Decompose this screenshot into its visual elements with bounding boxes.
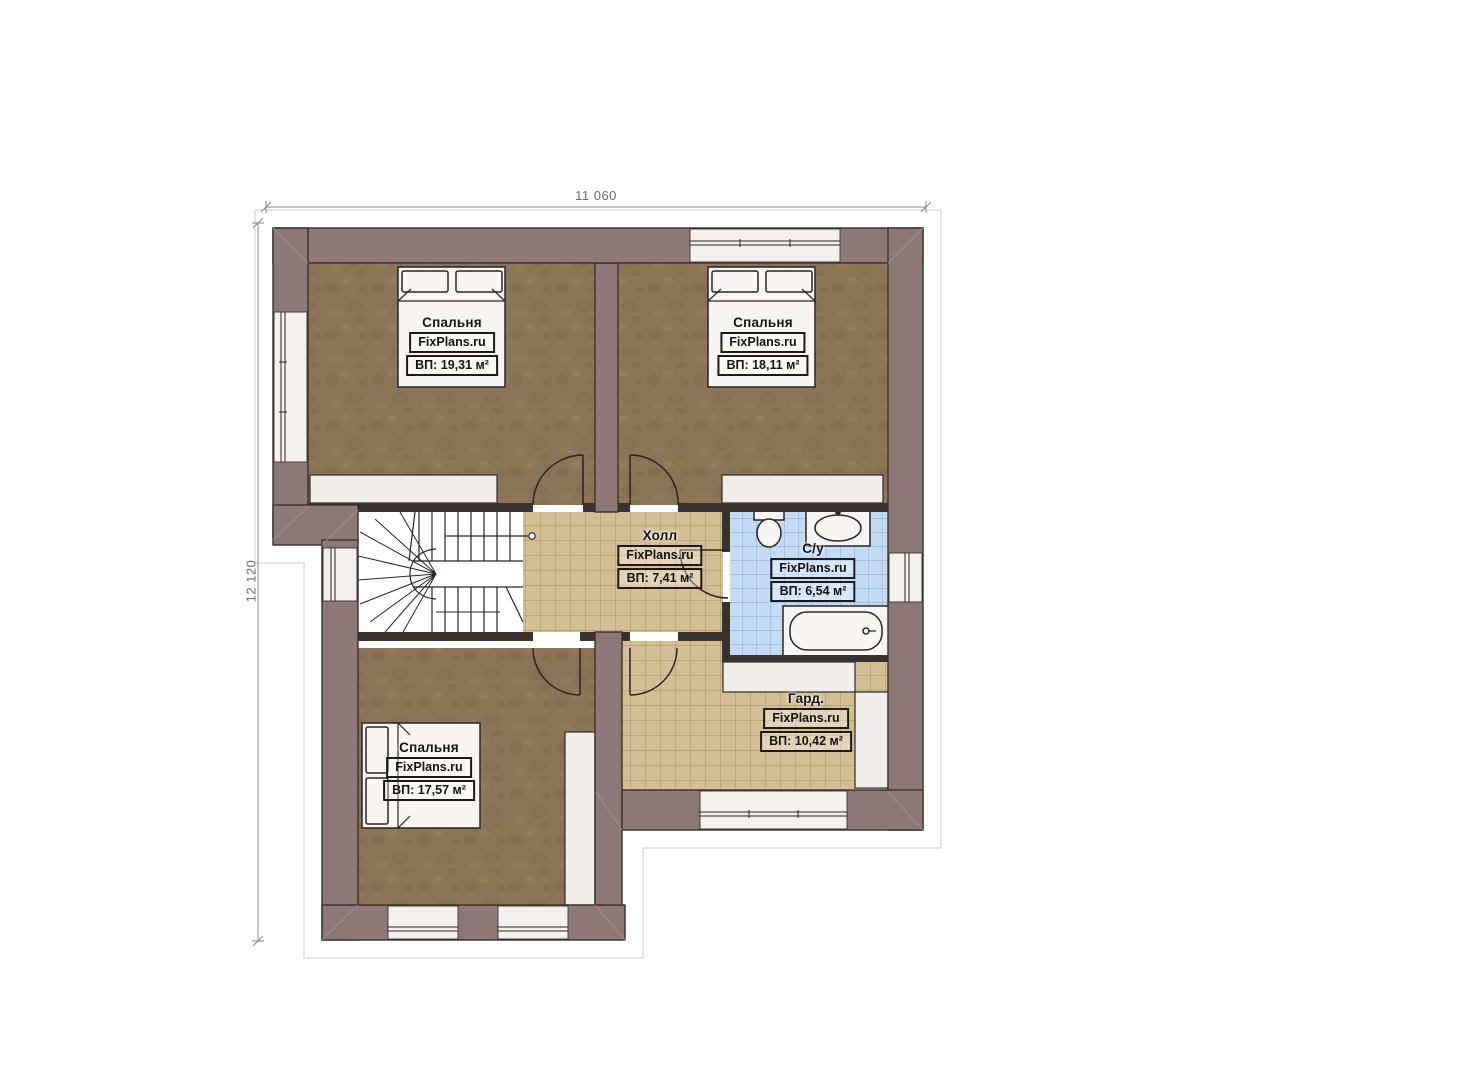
room-area: ВП: 6,54 м² <box>771 581 856 602</box>
wall-hall-bathroom-upper <box>722 512 730 552</box>
room-name: С/у <box>802 541 824 556</box>
room-area: ВП: 7,41 м² <box>618 568 703 589</box>
wall-right <box>888 228 923 830</box>
wall-bedroom-wardrobe <box>595 632 622 910</box>
room-name: Спальня <box>733 315 793 330</box>
window-bottom-wardrobe <box>700 791 847 829</box>
room-name: Спальня <box>399 740 459 755</box>
room-area: ВП: 17,57 м² <box>383 780 475 801</box>
window-top-bedroom-right <box>690 229 840 262</box>
room-area: ВП: 18,11 м² <box>717 355 808 376</box>
window-bottom-bedroom-2 <box>498 906 568 939</box>
room-label-bathroom: С/у FixPlans.ru ВП: 6,54 м² <box>770 541 855 602</box>
watermark-badge: FixPlans.ru <box>720 332 805 353</box>
window-right-bathroom <box>889 553 922 602</box>
floor-plan-drawing <box>0 0 1473 1080</box>
room-area: ВП: 19,31 м² <box>406 355 498 376</box>
room-label-bedroom-bottom-left: Спальня FixPlans.ru ВП: 17,57 м² <box>383 740 475 801</box>
wall-between-top-bedrooms <box>595 263 618 512</box>
floor-staircase <box>358 512 523 632</box>
room-label-wardrobe: Гард. FixPlans.ru ВП: 10,42 м² <box>760 691 852 752</box>
niche-bedroom-top-right <box>722 475 883 503</box>
watermark-badge: FixPlans.ru <box>617 545 702 566</box>
room-label-hall: Холл FixPlans.ru ВП: 7,41 м² <box>617 528 702 589</box>
stair-newel-post <box>529 533 535 539</box>
floor-plan-canvas: 11 060 12 120 Спальня FixPlans.ru ВП: 19… <box>0 0 1473 1080</box>
window-bottom-bedroom-1 <box>388 906 458 939</box>
room-label-bedroom-top-left: Спальня FixPlans.ru ВП: 19,31 м² <box>406 315 498 376</box>
wall-hall-bathroom-lower <box>722 602 730 655</box>
niche-wardrobe-top <box>723 662 855 692</box>
niche-wardrobe-right <box>855 692 888 788</box>
watermark-badge: FixPlans.ru <box>409 332 494 353</box>
room-name: Гард. <box>788 691 824 706</box>
wall-bathroom-bottom <box>722 655 888 662</box>
window-left-staircase <box>323 548 357 601</box>
dimension-height-label: 12 120 <box>244 560 259 603</box>
niche-bedroom-bottom <box>565 732 595 905</box>
room-area: ВП: 10,42 м² <box>760 731 852 752</box>
bathtub-icon <box>783 606 889 656</box>
wall-step <box>273 505 358 545</box>
wall-above-wardrobe-right <box>678 632 723 641</box>
window-left-bedroom-top <box>274 312 307 462</box>
room-name: Спальня <box>422 315 482 330</box>
watermark-badge: FixPlans.ru <box>763 708 848 729</box>
wall-under-bedrooms-right <box>678 503 890 512</box>
watermark-badge: FixPlans.ru <box>770 558 855 579</box>
dimension-width-label: 11 060 <box>575 188 617 203</box>
room-label-bedroom-top-right: Спальня FixPlans.ru ВП: 18,11 м² <box>717 315 808 376</box>
room-name: Холл <box>643 528 678 543</box>
niche-bedroom-top-left <box>310 475 497 503</box>
watermark-badge: FixPlans.ru <box>386 757 471 778</box>
wall-bottom-left-section <box>322 905 625 940</box>
